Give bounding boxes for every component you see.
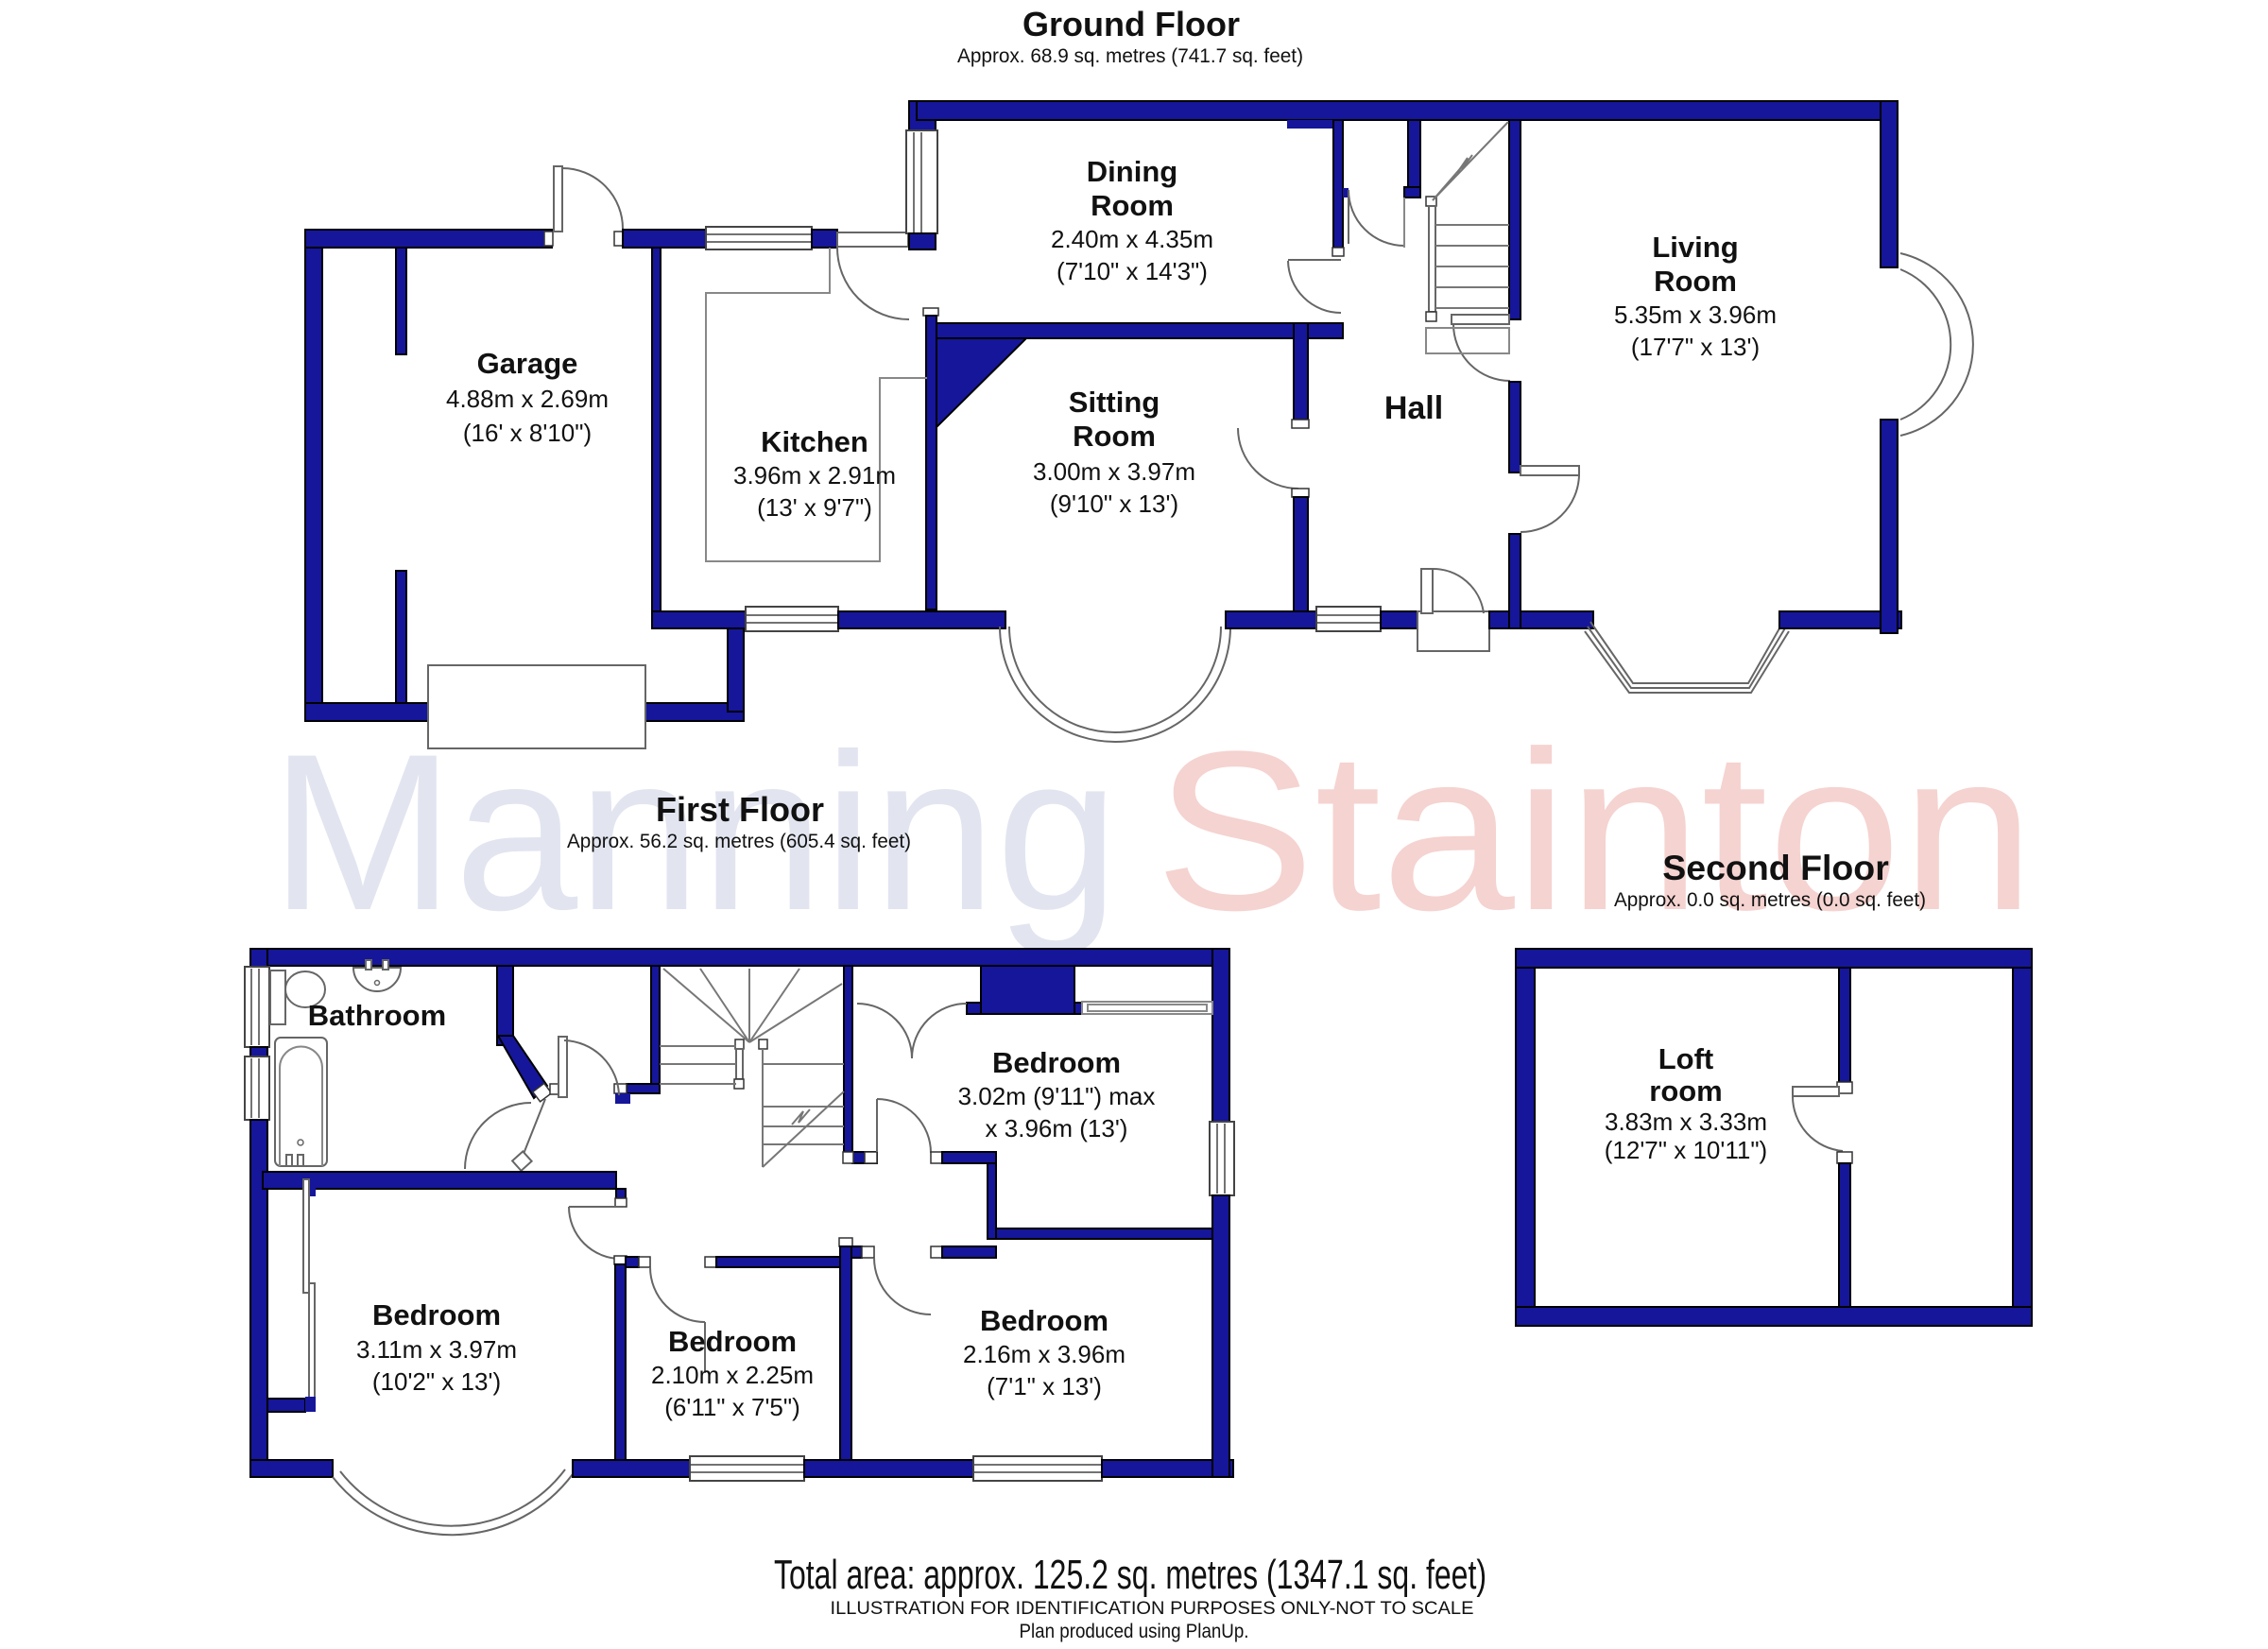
svg-text:Stainton: Stainton [1155, 704, 2035, 957]
svg-text:Ground Floor: Ground Floor [1022, 5, 1240, 43]
svg-text:Hall: Hall [1384, 390, 1443, 426]
svg-text:Room: Room [1091, 189, 1174, 222]
svg-text:Loft: Loft [1658, 1042, 1714, 1075]
svg-text:Second Floor: Second Floor [1662, 848, 1889, 887]
svg-text:(10'2" x 13'): (10'2" x 13') [372, 1367, 501, 1396]
svg-text:Bedroom: Bedroom [372, 1298, 501, 1331]
svg-text:Approx. 68.9 sq. metres (741.7: Approx. 68.9 sq. metres (741.7 sq. feet) [957, 44, 1303, 67]
svg-text:Bedroom: Bedroom [980, 1304, 1108, 1337]
svg-text:Approx. 56.2 sq. metres (605.4: Approx. 56.2 sq. metres (605.4 sq. feet) [567, 830, 911, 852]
svg-text:Bathroom: Bathroom [308, 999, 446, 1032]
svg-text:(6'11" x 7'5"): (6'11" x 7'5") [664, 1393, 800, 1421]
svg-text:Room: Room [1654, 265, 1737, 298]
svg-text:(13' x 9'7"): (13' x 9'7") [757, 493, 872, 522]
svg-text:(7'10" x 14'3"): (7'10" x 14'3") [1057, 257, 1208, 285]
svg-text:(9'10" x 13'): (9'10" x 13') [1050, 490, 1178, 518]
svg-text:3.96m x 2.91m: 3.96m x 2.91m [733, 461, 896, 490]
svg-text:Plan produced using PlanUp.: Plan produced using PlanUp. [1020, 1621, 1249, 1642]
svg-text:ILLUSTRATION FOR IDENTIFICATIO: ILLUSTRATION FOR IDENTIFICATION PURPOSES… [831, 1598, 1474, 1619]
svg-text:Sitting: Sitting [1069, 386, 1160, 419]
svg-text:4.88m x 2.69m: 4.88m x 2.69m [446, 385, 609, 413]
svg-text:Dining: Dining [1087, 155, 1177, 188]
svg-text:Approx. 0.0 sq. metres (0.0 sq: Approx. 0.0 sq. metres (0.0 sq. feet) [1614, 888, 1926, 911]
svg-text:Living: Living [1652, 231, 1738, 264]
svg-text:First Floor: First Floor [656, 790, 824, 829]
svg-text:3.00m x 3.97m: 3.00m x 3.97m [1033, 457, 1195, 486]
svg-text:3.02m (9'11") max: 3.02m (9'11") max [958, 1082, 1156, 1110]
svg-text:x 3.96m (13'): x 3.96m (13') [986, 1114, 1128, 1142]
svg-text:Bedroom: Bedroom [992, 1046, 1121, 1079]
svg-text:3.83m x 3.33m: 3.83m x 3.33m [1605, 1108, 1767, 1136]
svg-text:Bedroom: Bedroom [668, 1325, 797, 1358]
svg-text:Garage: Garage [477, 347, 578, 380]
svg-text:5.35m x 3.96m: 5.35m x 3.96m [1614, 301, 1777, 329]
svg-text:Room: Room [1073, 420, 1156, 453]
svg-text:(12'7" x 10'11"): (12'7" x 10'11") [1605, 1136, 1767, 1164]
svg-text:3.11m x 3.97m: 3.11m x 3.97m [356, 1335, 517, 1364]
svg-text:(17'7" x 13'): (17'7" x 13') [1631, 333, 1760, 361]
svg-text:Total area: approx. 125.2 sq.: Total area: approx. 125.2 sq. metres (13… [774, 1552, 1486, 1598]
svg-text:room: room [1649, 1074, 1723, 1108]
svg-text:2.40m x 4.35m: 2.40m x 4.35m [1051, 225, 1213, 253]
svg-text:(16' x 8'10"): (16' x 8'10") [463, 419, 592, 447]
svg-text:2.10m x 2.25m: 2.10m x 2.25m [651, 1361, 814, 1389]
svg-text:(7'1" x 13'): (7'1" x 13') [987, 1372, 1102, 1400]
svg-text:Kitchen: Kitchen [761, 425, 868, 458]
svg-text:2.16m x 3.96m: 2.16m x 3.96m [963, 1340, 1125, 1368]
